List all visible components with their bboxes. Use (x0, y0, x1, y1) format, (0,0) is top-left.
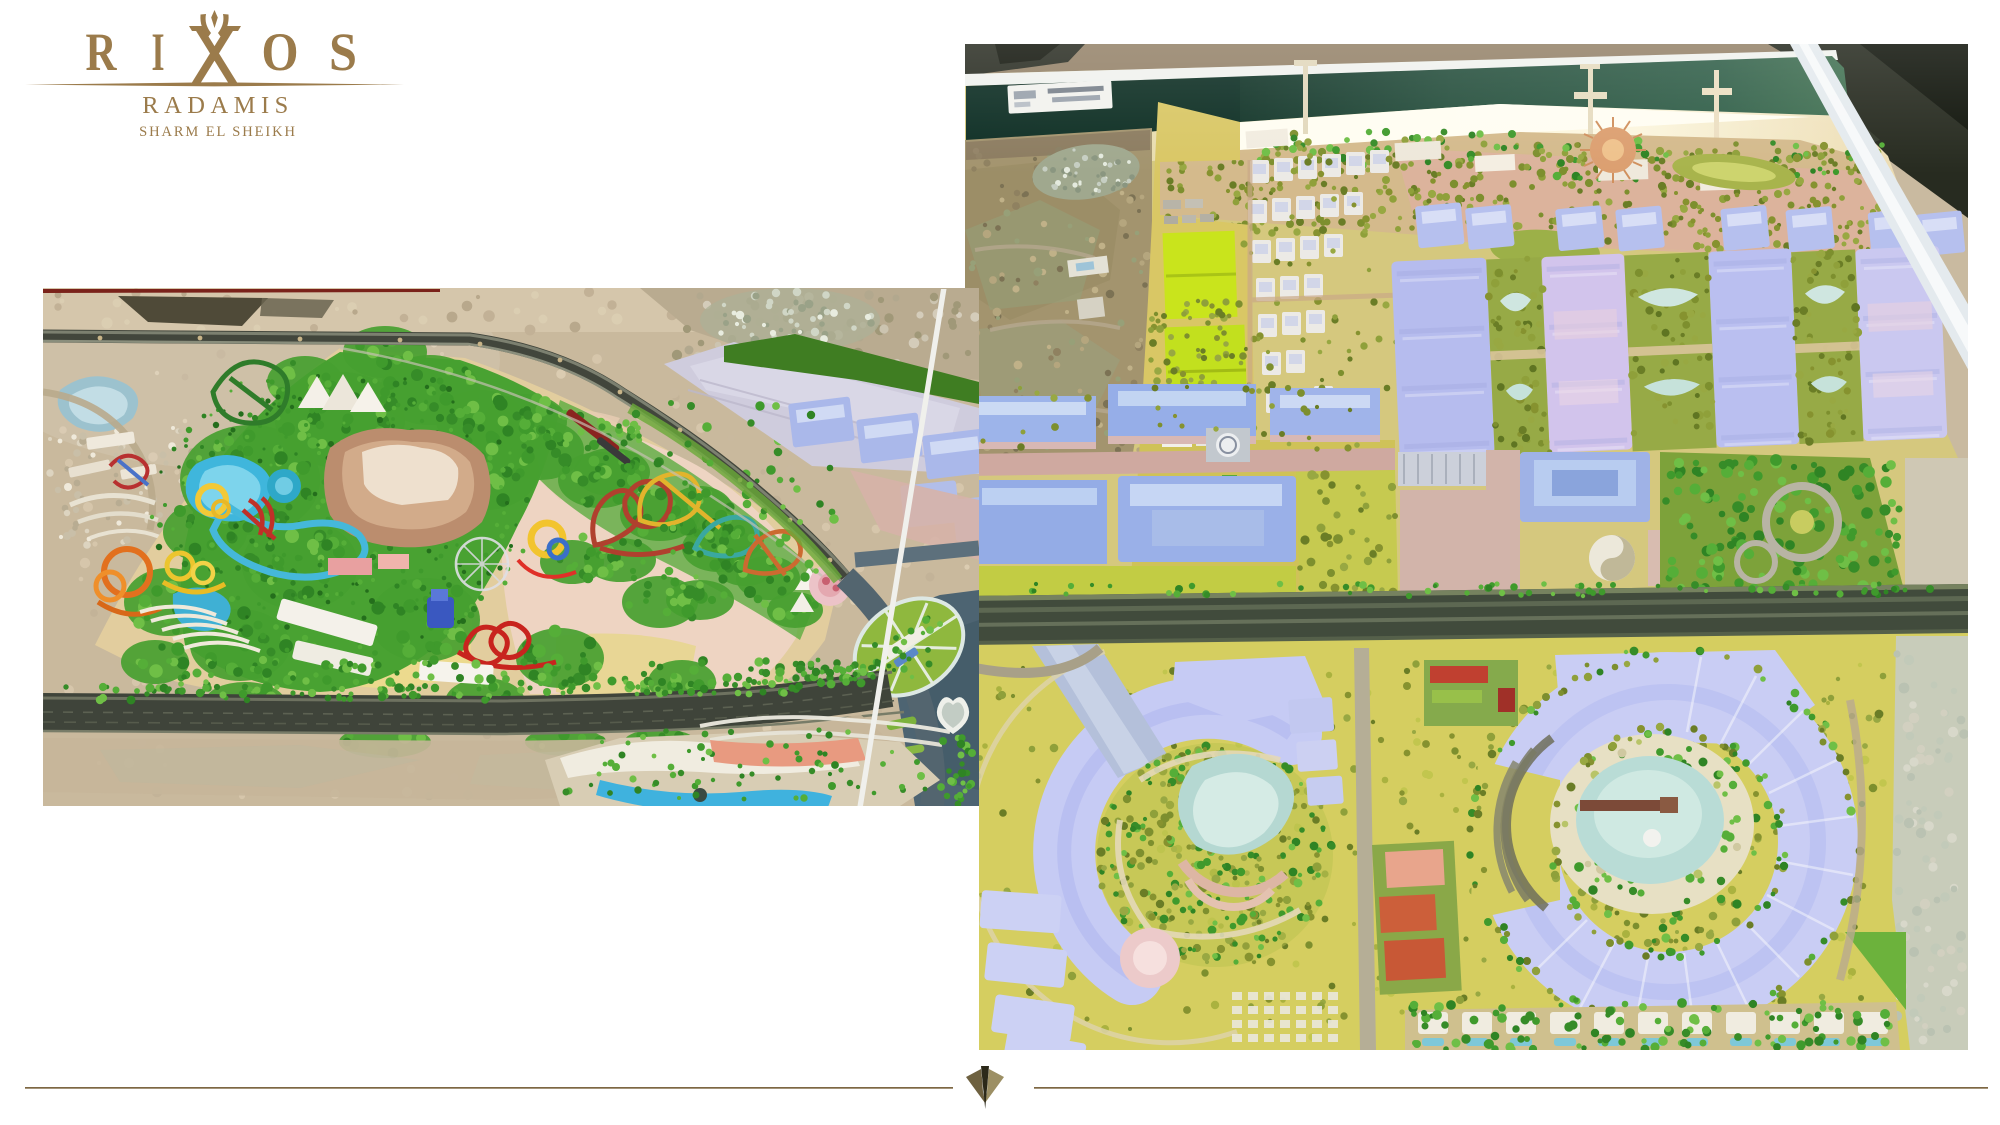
svg-text:SHARM EL SHEIKH: SHARM EL SHEIKH (139, 124, 297, 140)
svg-text:R: R (86, 22, 118, 82)
svg-text:S: S (329, 22, 357, 82)
svg-text:O: O (262, 22, 299, 82)
svg-text:RADAMIS: RADAMIS (142, 92, 294, 119)
svg-text:I: I (152, 22, 165, 82)
